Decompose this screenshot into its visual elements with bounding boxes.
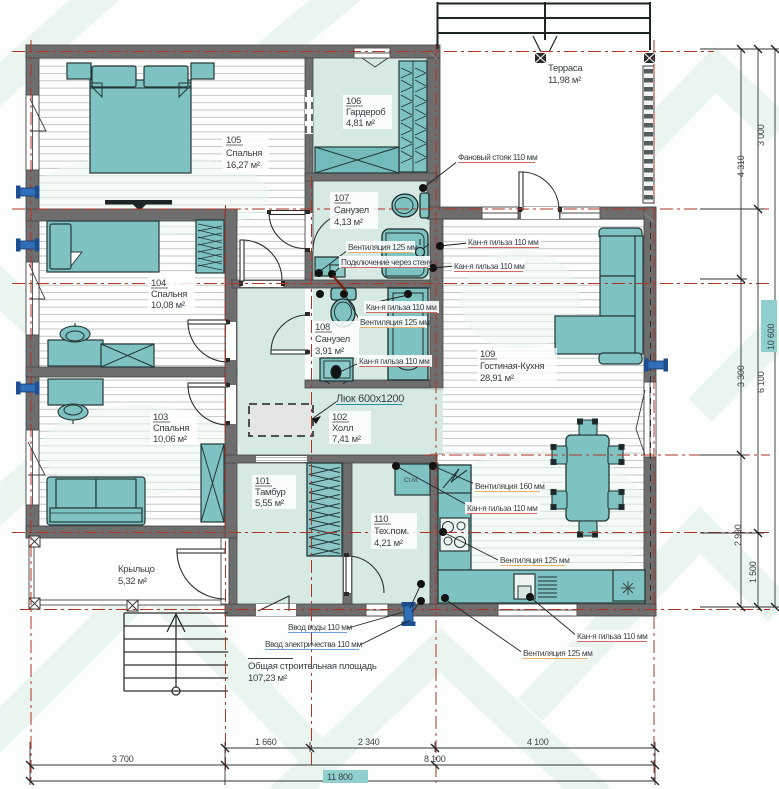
svg-text:107: 107 bbox=[334, 193, 349, 204]
svg-text:8 100: 8 100 bbox=[424, 754, 446, 764]
svg-text:106: 106 bbox=[346, 96, 361, 107]
svg-text:Фановый стояк 110 мм: Фановый стояк 110 мм bbox=[458, 152, 538, 162]
svg-text:102: 102 bbox=[332, 412, 347, 423]
svg-text:Кан-я гильза 110 мм: Кан-я гильза 110 мм bbox=[359, 356, 430, 366]
svg-text:2 990: 2 990 bbox=[733, 524, 743, 546]
svg-text:1 660: 1 660 bbox=[255, 737, 277, 747]
svg-text:109: 109 bbox=[480, 349, 495, 360]
svg-text:103: 103 bbox=[153, 412, 168, 423]
svg-text:110: 110 bbox=[374, 514, 388, 525]
svg-text:6 100: 6 100 bbox=[756, 371, 766, 393]
svg-text:10 600: 10 600 bbox=[766, 323, 776, 350]
svg-text:Кан-я гильза 110 мм: Кан-я гильза 110 мм bbox=[467, 503, 538, 513]
svg-text:5,32 м²: 5,32 м² bbox=[118, 576, 147, 587]
svg-text:10,08 м²: 10,08 м² bbox=[151, 300, 185, 311]
svg-text:3 000: 3 000 bbox=[756, 124, 766, 146]
svg-text:Кан-я гильза 110 мм: Кан-я гильза 110 мм bbox=[454, 261, 525, 271]
svg-text:Кан-я гильза 110 мм: Кан-я гильза 110 мм bbox=[366, 302, 437, 312]
svg-text:107,23 м²: 107,23 м² bbox=[248, 673, 287, 684]
svg-text:4,81 м²: 4,81 м² bbox=[346, 118, 375, 129]
svg-text:Вентиляция 125 мм: Вентиляция 125 мм bbox=[500, 555, 570, 565]
svg-text:Вентиляция 160 мм: Вентиляция 160 мм bbox=[475, 481, 545, 491]
svg-text:Вентиляция 125 мм: Вентиляция 125 мм bbox=[348, 242, 418, 252]
svg-text:11 800: 11 800 bbox=[327, 772, 353, 782]
svg-text:Крыльцо: Крыльцо bbox=[118, 564, 155, 575]
svg-text:Ввод воды 110 мм: Ввод воды 110 мм bbox=[288, 622, 353, 632]
svg-text:Подключение через стену: Подключение через стену bbox=[341, 257, 433, 267]
svg-text:105: 105 bbox=[226, 135, 241, 146]
svg-text:Люк 600х1200: Люк 600х1200 bbox=[336, 393, 404, 405]
svg-text:Ввод электричества 110 мм: Ввод электричества 110 мм bbox=[265, 639, 362, 649]
svg-text:Ст.М.: Ст.М. bbox=[404, 478, 419, 484]
svg-text:28,91 м²: 28,91 м² bbox=[480, 373, 514, 384]
svg-text:Кан-я гильза 110 мм: Кан-я гильза 110 мм bbox=[468, 237, 539, 247]
svg-text:Вентиляция 125 мм: Вентиляция 125 мм bbox=[360, 317, 430, 327]
svg-text:5,55 м²: 5,55 м² bbox=[255, 498, 284, 509]
svg-text:Санузел: Санузел bbox=[315, 334, 350, 345]
svg-text:Общая строительная площадь: Общая строительная площадь bbox=[248, 661, 377, 672]
svg-text:1 500: 1 500 bbox=[748, 561, 758, 583]
svg-text:7,41 м²: 7,41 м² bbox=[332, 434, 361, 445]
svg-text:108: 108 bbox=[315, 322, 330, 333]
svg-text:11,98 м²: 11,98 м² bbox=[548, 75, 581, 86]
svg-text:Спальня: Спальня bbox=[226, 148, 262, 159]
svg-text:Терраса: Терраса bbox=[548, 63, 583, 74]
svg-text:4,21 м²: 4,21 м² bbox=[374, 538, 403, 549]
svg-text:Холл: Холл bbox=[332, 423, 353, 434]
svg-text:3 700: 3 700 bbox=[112, 754, 134, 764]
svg-text:Вентиляция 125 мм: Вентиляция 125 мм bbox=[523, 648, 593, 658]
svg-text:3 300: 3 300 bbox=[736, 365, 746, 387]
svg-text:10,06 м²: 10,06 м² bbox=[153, 434, 187, 445]
svg-text:Тамбур: Тамбур bbox=[255, 487, 285, 498]
svg-text:104: 104 bbox=[151, 278, 166, 289]
svg-text:Спальня: Спальня bbox=[151, 289, 187, 300]
svg-text:3,91 м²: 3,91 м² bbox=[315, 346, 344, 357]
svg-text:Кан-я гильза 110 мм: Кан-я гильза 110 мм bbox=[577, 631, 648, 641]
svg-text:Спальня: Спальня bbox=[153, 423, 189, 434]
svg-text:16,27 м²: 16,27 м² bbox=[226, 160, 260, 171]
svg-text:4 100: 4 100 bbox=[527, 737, 549, 747]
svg-text:4,13 м²: 4,13 м² bbox=[334, 217, 363, 228]
svg-text:Санузел: Санузел bbox=[334, 205, 369, 216]
svg-text:✳: ✳ bbox=[620, 579, 636, 600]
svg-text:Тех.пом.: Тех.пом. bbox=[374, 526, 409, 537]
svg-text:101: 101 bbox=[255, 476, 270, 487]
svg-text:Гардероб: Гардероб bbox=[346, 107, 386, 118]
svg-text:Гостиная-Кухня: Гостиная-Кухня bbox=[480, 361, 544, 372]
svg-text:2 340: 2 340 bbox=[358, 737, 380, 747]
svg-text:4 310: 4 310 bbox=[736, 155, 746, 177]
